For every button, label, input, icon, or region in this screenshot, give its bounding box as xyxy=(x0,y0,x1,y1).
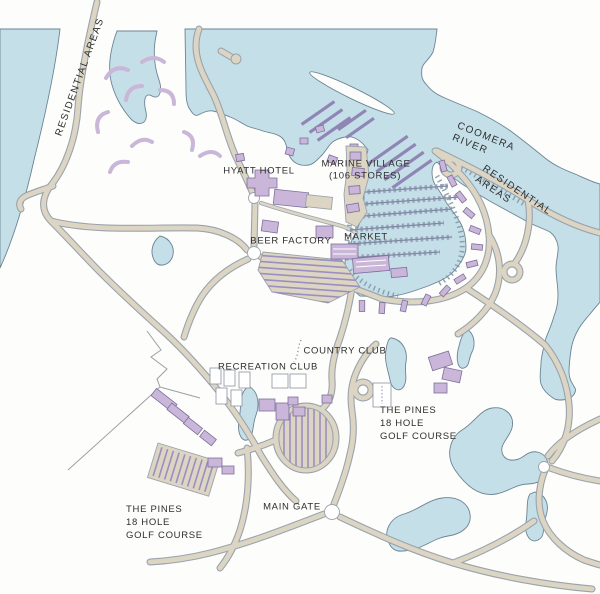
label-hyatt-hotel: HYATT HOTEL xyxy=(223,165,295,178)
east-roundabout xyxy=(539,462,550,473)
label-country-club: COUNTRY CLUB xyxy=(303,345,386,358)
label-pines-golf-west: THE PINES 18 HOLE GOLF COURSE xyxy=(126,503,203,542)
label-pines-golf-east: THE PINES 18 HOLE GOLF COURSE xyxy=(380,404,457,443)
label-main-gate: MAIN GATE xyxy=(263,501,321,514)
resort-map: RESIDENTIAL AREAS COOMERA RIVER RESIDENT… xyxy=(0,0,600,594)
label-recreation-club: RECREATION CLUB xyxy=(218,361,318,374)
culdesac-dot xyxy=(231,54,241,64)
pond-country-club xyxy=(385,338,406,390)
hyatt-wing xyxy=(273,189,308,207)
label-market: MARKET xyxy=(344,231,388,244)
lake-pines-north xyxy=(450,408,549,495)
label-marine-village-stores: (106 STORES) xyxy=(329,170,401,183)
southwest-parking xyxy=(147,443,219,496)
pond-northwest xyxy=(110,31,161,123)
pond-west xyxy=(152,236,173,265)
beer-factory-roundabout xyxy=(248,247,261,260)
country-club-path xyxy=(294,340,301,362)
label-beer-factory: BEER FACTORY xyxy=(250,235,331,248)
hyatt-annex xyxy=(305,195,332,210)
main-gate-roundabout xyxy=(325,505,340,520)
left-water-wedge xyxy=(0,29,60,268)
